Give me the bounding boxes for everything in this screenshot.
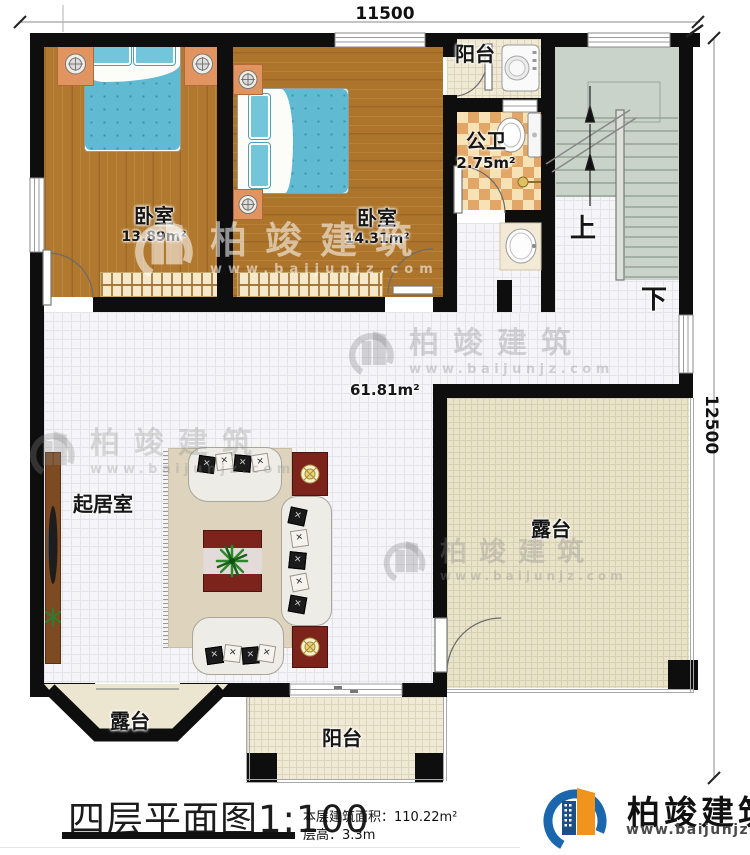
balcony-pillar xyxy=(415,753,443,782)
cushion: ✕ xyxy=(233,454,251,472)
info-height-label: 层高： xyxy=(303,828,342,843)
terrace-bay-label: 露台 xyxy=(110,705,150,734)
plan-info-height: 层高：3.3m xyxy=(303,827,457,845)
dimension-right: 12500 xyxy=(701,395,721,454)
pillow xyxy=(249,143,270,188)
nightstand xyxy=(184,42,221,86)
stair-up-label: 上 xyxy=(570,208,596,245)
wall xyxy=(541,33,700,47)
cushion: ✕ xyxy=(215,452,234,471)
stair-upper-flight xyxy=(555,47,679,197)
wall xyxy=(30,683,95,697)
wall xyxy=(443,210,457,223)
wall xyxy=(180,683,290,697)
bedroom1-label: 卧室 13.89m² xyxy=(110,200,198,245)
info-area-label: 本层建筑面积： xyxy=(303,810,394,825)
wall xyxy=(433,384,693,398)
title-underline xyxy=(62,832,295,839)
tv-cabinet xyxy=(45,452,61,664)
terrace-right-label: 露台 xyxy=(531,513,571,542)
balcony-pillar xyxy=(247,753,277,782)
plan-info-area: 本层建筑面积：110.22m² xyxy=(303,809,457,827)
terrace-right-floor xyxy=(447,398,689,688)
wall xyxy=(30,33,44,697)
cushion: ✕ xyxy=(257,644,276,663)
nightstand xyxy=(233,189,263,220)
hall-floor xyxy=(447,312,679,384)
room-name: 卧室 xyxy=(357,206,397,230)
stair-down-label: 下 xyxy=(641,279,667,316)
living-area-label: 61.81m² xyxy=(350,381,420,399)
cushion: ✕ xyxy=(205,646,224,665)
wall xyxy=(679,33,693,398)
balcony-top-label: 阳台 xyxy=(455,38,495,67)
room-name: 卧室 xyxy=(134,204,174,228)
wall xyxy=(433,297,445,312)
room-area: 13.89m² xyxy=(110,229,198,245)
cushion: ✕ xyxy=(290,573,310,593)
wall xyxy=(443,98,555,112)
nightstand xyxy=(57,42,94,86)
room-area: 14.31m² xyxy=(333,231,421,247)
wall xyxy=(93,297,385,312)
side-table xyxy=(292,452,328,496)
wall xyxy=(497,280,512,312)
wardrobe xyxy=(100,272,218,297)
wall xyxy=(668,660,698,690)
plan-info: 本层建筑面积：110.22m² 层高：3.3m xyxy=(303,809,457,845)
cushion: ✕ xyxy=(223,644,242,663)
brand-logo-icon xyxy=(530,783,624,853)
room-area: 2.75m² xyxy=(446,154,526,172)
wall xyxy=(433,672,447,697)
cushion: ✕ xyxy=(290,529,309,548)
cushion: ✕ xyxy=(197,455,216,474)
wall xyxy=(541,33,555,312)
cushion: ✕ xyxy=(251,453,270,472)
info-height-value: 3.3m xyxy=(342,828,375,843)
wall xyxy=(433,398,447,618)
wall xyxy=(217,47,233,297)
title-rule xyxy=(0,847,520,848)
nightstand xyxy=(233,64,263,95)
dimension-top: 11500 xyxy=(340,4,430,24)
brand-url: www.baijunjz.com xyxy=(626,822,750,838)
info-area-value: 110.22m² xyxy=(394,810,457,825)
bathroom-label: 公卫 2.75m² xyxy=(446,125,526,172)
wardrobe xyxy=(237,272,383,297)
living-label: 起居室 xyxy=(73,488,133,517)
bedroom2-label: 卧室 14.31m² xyxy=(333,202,421,247)
cushion: ✕ xyxy=(288,551,307,570)
wall xyxy=(505,210,555,223)
room-name: 公卫 xyxy=(466,129,506,153)
balcony-bottom-label: 阳台 xyxy=(322,722,362,751)
side-table xyxy=(292,626,328,668)
pillow xyxy=(249,94,270,139)
wall xyxy=(30,33,447,47)
cushion: ✕ xyxy=(288,595,308,615)
stair-right-flight xyxy=(620,197,679,280)
cushion: ✕ xyxy=(287,506,307,526)
table-runner xyxy=(203,548,262,574)
floorplan-canvas: ✕ ✕ ✕ ✕ ✕ ✕ ✕ ✕ ✕ ✕ ✕ ✕ ✕ xyxy=(0,0,750,855)
